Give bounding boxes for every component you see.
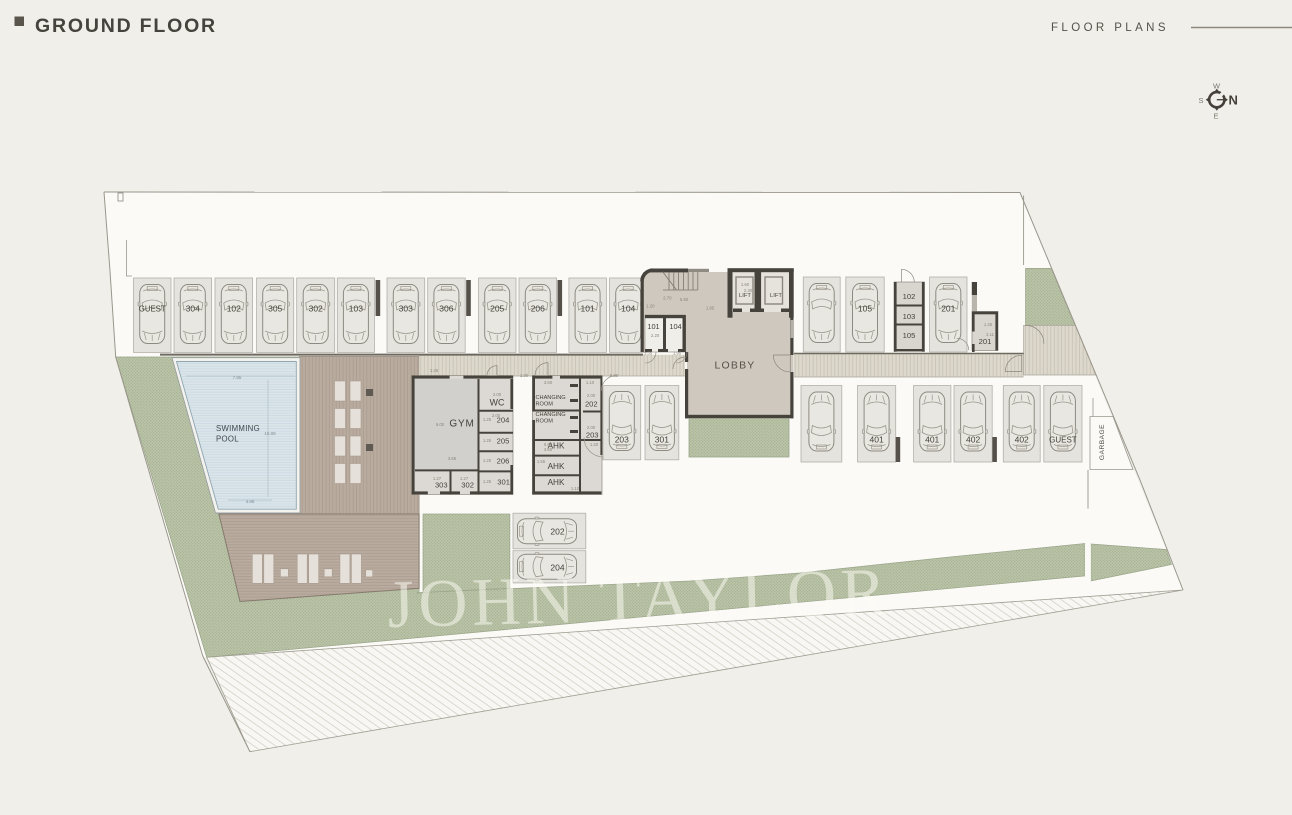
svg-text:101: 101: [647, 322, 659, 331]
svg-text:ROOM: ROOM: [536, 419, 554, 425]
svg-text:GYM: GYM: [449, 419, 474, 430]
svg-text:1.25: 1.25: [483, 438, 492, 443]
svg-text:303: 303: [435, 481, 448, 490]
svg-text:1.27: 1.27: [460, 476, 469, 481]
svg-text:GROUND FLOOR: GROUND FLOOR: [35, 15, 217, 37]
svg-text:10.08: 10.08: [264, 431, 276, 436]
svg-text:203: 203: [586, 431, 599, 440]
svg-text:CHANGING: CHANGING: [536, 395, 566, 401]
svg-text:302: 302: [309, 304, 323, 314]
svg-text:206: 206: [531, 304, 545, 314]
svg-text:SWIMMING: SWIMMING: [216, 424, 260, 433]
svg-text:2.70: 2.70: [663, 295, 672, 300]
svg-text:1.30: 1.30: [520, 373, 529, 378]
svg-text:POOL: POOL: [216, 435, 239, 444]
svg-text:3.60: 3.60: [544, 447, 553, 452]
svg-text:103: 103: [349, 304, 363, 314]
svg-text:2.00: 2.00: [493, 392, 502, 397]
svg-text:402: 402: [1015, 435, 1029, 445]
svg-text:102: 102: [903, 292, 916, 301]
svg-text:303: 303: [399, 304, 413, 314]
svg-text:201: 201: [941, 304, 955, 314]
svg-text:301: 301: [655, 435, 669, 445]
svg-text:JOHN TAYLOR: JOHN TAYLOR: [386, 553, 891, 642]
svg-text:304: 304: [186, 304, 200, 314]
svg-text:1.20: 1.20: [483, 458, 492, 463]
svg-text:S: S: [1199, 96, 1204, 105]
svg-text:402: 402: [966, 435, 980, 445]
svg-text:202: 202: [585, 400, 598, 409]
svg-text:GUEST: GUEST: [1049, 436, 1077, 445]
svg-text:104: 104: [621, 304, 635, 314]
svg-text:1.35: 1.35: [644, 351, 653, 356]
svg-text:1.25: 1.25: [984, 322, 993, 327]
svg-text:1.25: 1.25: [483, 417, 492, 422]
svg-text:1.25: 1.25: [430, 368, 439, 373]
svg-text:206: 206: [497, 457, 510, 466]
svg-text:104: 104: [669, 322, 681, 331]
svg-text:105: 105: [903, 331, 916, 340]
svg-text:LIFT: LIFT: [739, 293, 751, 299]
svg-text:2.20: 2.20: [651, 333, 660, 338]
svg-text:ROOM: ROOM: [536, 402, 554, 408]
svg-text:E: E: [1214, 112, 1219, 121]
svg-text:301: 301: [497, 477, 510, 486]
svg-text:LOBBY: LOBBY: [714, 360, 755, 372]
svg-text:401: 401: [925, 435, 939, 445]
svg-text:1.27: 1.27: [433, 476, 442, 481]
svg-text:GARBAGE: GARBAGE: [1099, 424, 1106, 460]
svg-text:LIFT: LIFT: [770, 293, 782, 299]
svg-text:FLOOR PLANS: FLOOR PLANS: [1051, 22, 1169, 34]
svg-text:205: 205: [497, 436, 510, 445]
svg-text:305: 305: [268, 304, 282, 314]
svg-text:1.55: 1.55: [537, 459, 546, 464]
svg-text:2.30: 2.30: [744, 288, 753, 293]
svg-text:102: 102: [227, 304, 241, 314]
svg-text:105: 105: [858, 304, 872, 314]
svg-text:202: 202: [550, 527, 564, 537]
svg-text:201: 201: [979, 337, 992, 346]
svg-text:1.60: 1.60: [741, 282, 750, 287]
svg-text:401: 401: [870, 435, 884, 445]
svg-text:1.20: 1.20: [590, 442, 599, 447]
svg-text:2.00: 2.00: [587, 393, 596, 398]
svg-text:3.60: 3.60: [544, 380, 553, 385]
svg-text:1.25: 1.25: [483, 479, 492, 484]
svg-text:CHANGING: CHANGING: [536, 412, 566, 418]
svg-text:2.00: 2.00: [492, 413, 501, 418]
svg-text:2.11: 2.11: [986, 332, 995, 337]
svg-text:5.50: 5.50: [680, 297, 689, 302]
svg-text:103: 103: [903, 312, 916, 321]
svg-text:203: 203: [615, 435, 629, 445]
svg-text:GUEST: GUEST: [139, 305, 166, 314]
svg-text:W: W: [1213, 81, 1221, 90]
svg-text:306: 306: [439, 304, 453, 314]
svg-text:1.10: 1.10: [571, 486, 580, 491]
svg-text:1.95: 1.95: [706, 305, 715, 310]
svg-text:6.00: 6.00: [436, 422, 445, 427]
svg-text:WC: WC: [490, 398, 505, 408]
svg-text:302: 302: [461, 481, 474, 490]
svg-text:3.65: 3.65: [448, 456, 457, 461]
svg-text:AHK: AHK: [548, 462, 565, 471]
svg-text:205: 205: [490, 304, 504, 314]
svg-text:AHK: AHK: [548, 478, 565, 487]
svg-text:N: N: [1229, 93, 1238, 108]
svg-text:101: 101: [581, 304, 595, 314]
svg-text:1.10: 1.10: [586, 380, 595, 385]
svg-text:2.00: 2.00: [587, 425, 596, 430]
svg-text:1.95: 1.95: [673, 351, 682, 356]
svg-text:1.20: 1.20: [646, 303, 655, 308]
